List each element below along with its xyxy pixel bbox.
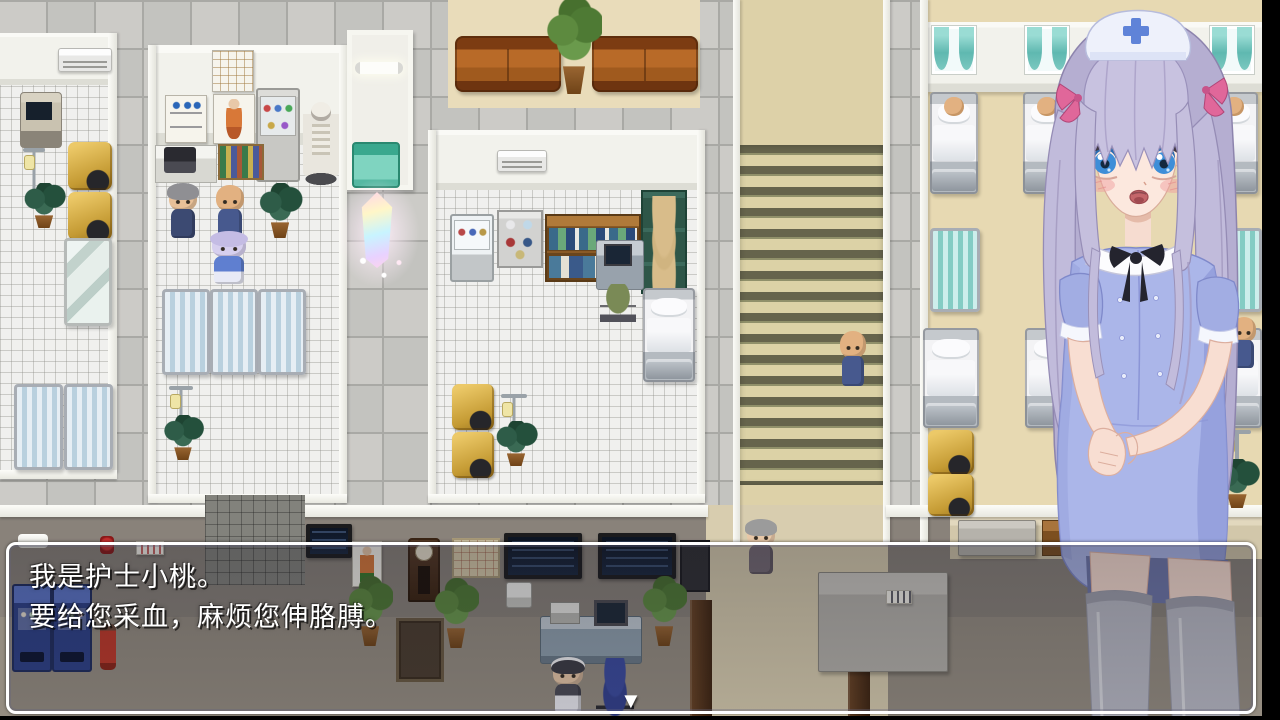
bed-pillow — [651, 298, 686, 317]
room-b-trim-left — [148, 45, 156, 503]
game-viewport[interactable]: 我是护士小桃。 要给您采血，麻烦您伸胳膊。 ▼ — [0, 0, 1280, 720]
book-shelf — [218, 144, 264, 180]
npc-hair — [167, 183, 199, 200]
potted-plant — [260, 186, 300, 238]
curtain-screen — [258, 289, 306, 375]
curtain-screen — [930, 228, 980, 312]
npc-bald-patient — [836, 330, 870, 388]
curtain-screen — [64, 384, 113, 470]
curtain-screen — [162, 289, 210, 375]
bed-blanket — [647, 318, 692, 352]
medical-monitor-machine — [20, 92, 62, 148]
skeleton-base — [303, 172, 339, 186]
air-conditioner — [58, 48, 112, 72]
continue-arrow-icon: ▼ — [620, 688, 642, 714]
room-c-trim-left — [428, 130, 436, 503]
crystal-sparkles — [348, 250, 408, 286]
npc-body — [214, 256, 243, 284]
monitor-screen — [26, 102, 52, 120]
ward-bed — [923, 328, 979, 428]
medicine-bottles — [260, 96, 296, 136]
ward-bed-occupied — [930, 92, 978, 194]
anatomy-figure — [226, 99, 242, 139]
npc-body — [171, 209, 195, 238]
curtain-screen — [14, 384, 63, 470]
bed-blanket — [927, 360, 975, 396]
potted-plant — [496, 424, 536, 466]
eye-chart-symbols — [170, 100, 202, 136]
hospital-bed — [643, 288, 695, 382]
potted-plant — [164, 418, 202, 460]
potted-plant — [24, 186, 64, 228]
air-conditioner — [497, 150, 547, 172]
npc-doctor — [164, 184, 202, 240]
wall-calendar — [212, 50, 254, 92]
wheelchair — [68, 192, 112, 240]
laptop — [164, 147, 196, 173]
ward-trim-left — [920, 0, 928, 545]
patient-head — [944, 97, 963, 116]
potted-tree — [550, 2, 598, 94]
room-c-wall — [433, 130, 700, 190]
rack-sacks — [645, 196, 683, 288]
bed-blanket — [933, 125, 974, 162]
npc-head — [216, 185, 243, 211]
wheelchair — [452, 384, 494, 430]
npc-hair — [745, 519, 777, 536]
room-c-trim-right — [697, 130, 705, 503]
dialog-line-1: 我是护士小桃。 — [29, 557, 1233, 597]
reception-trim-left — [0, 505, 708, 517]
room-a-trim-bottom — [0, 470, 117, 479]
bed-pillow — [932, 339, 970, 359]
dialog-line-2: 要给您采血，麻烦您伸胳膊。 — [29, 597, 1233, 637]
leather-couch — [592, 36, 698, 92]
desk-monitor — [604, 244, 632, 266]
room-c-trim-bottom — [428, 494, 705, 503]
ward-window — [932, 26, 976, 74]
wheelchair — [928, 474, 974, 516]
wheelchair — [928, 430, 974, 474]
skeleton-model — [303, 102, 339, 176]
letterbox-right — [1262, 0, 1280, 720]
curtain-screen — [210, 289, 258, 375]
npc-player — [206, 232, 252, 286]
hallway-trim-left — [733, 0, 740, 545]
cabinet-bottles — [454, 220, 490, 250]
mirror — [64, 238, 112, 326]
ceiling-lamp — [355, 62, 403, 74]
npc-body — [842, 356, 864, 386]
dishes — [501, 216, 539, 260]
leather-couch — [455, 36, 561, 92]
letterbox-bottom — [0, 716, 1280, 720]
hallway-trim-right — [883, 0, 890, 545]
staircase — [740, 145, 883, 485]
npc-head — [840, 331, 866, 358]
wheelchair — [68, 142, 112, 190]
office-stool — [600, 284, 636, 322]
wheelchair — [452, 432, 494, 478]
